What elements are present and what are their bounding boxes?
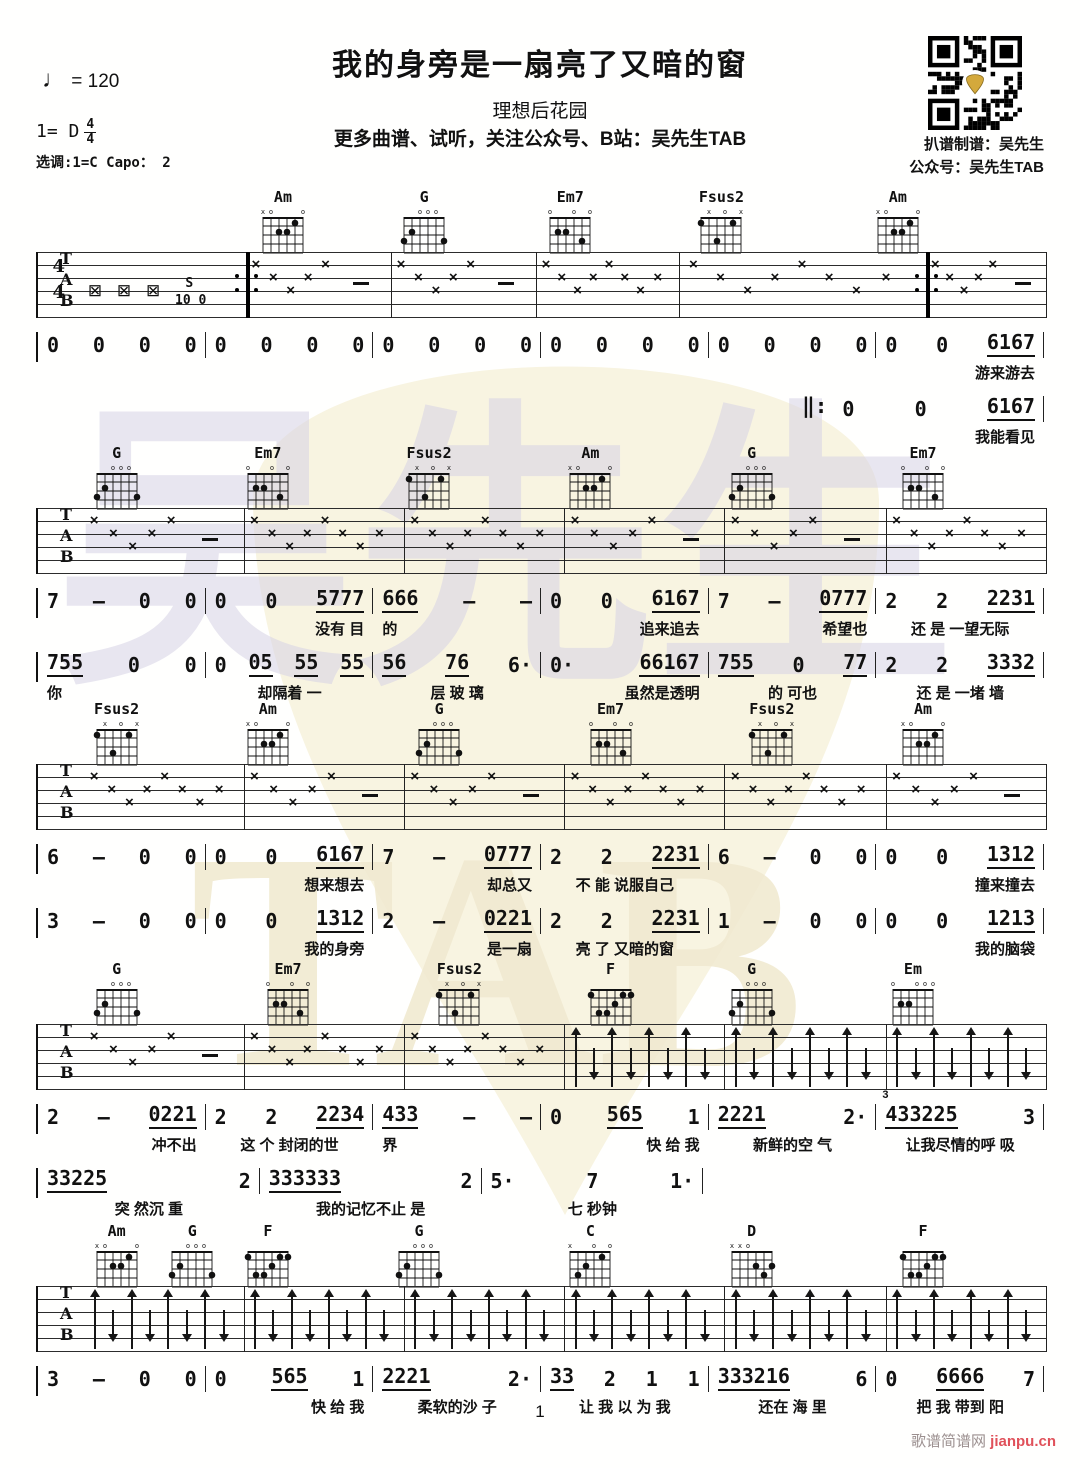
arrow-stem [1007, 1032, 1009, 1087]
arrow-stem [611, 1032, 613, 1087]
muted-box-note: ⊠ [146, 282, 160, 299]
mute-strum-x: × [428, 1042, 437, 1057]
arrow-stem [685, 1294, 687, 1349]
arrow-head [861, 1072, 871, 1080]
jianpu-token: 0 [855, 910, 867, 933]
strum-down-arrow [749, 1048, 759, 1080]
jianpu-token: 2 [382, 910, 394, 933]
promo-line: 更多曲谱、试听，关注公众号、B站：吴先生TAB [0, 124, 1080, 151]
staff-line [38, 790, 1046, 791]
jianpu-token: 0 [855, 846, 867, 869]
jianpu-token: 1312 [316, 907, 364, 933]
mute-strum-x: × [397, 257, 406, 272]
strum-up-arrow [287, 1289, 297, 1349]
strum-down-arrow [145, 1310, 155, 1342]
arrow-head [805, 1289, 815, 1297]
mute-strum-x: × [375, 526, 384, 541]
chord-row: AmxooGoooFGoooCxooDxxoF [36, 1224, 1044, 1284]
tab-letter-T: T [60, 507, 72, 523]
arrow-stem [865, 1310, 867, 1336]
jianpu-token: 0 [265, 590, 277, 613]
barline [404, 508, 405, 574]
arrow-head [929, 1027, 939, 1035]
mute-strum-x: × [969, 769, 978, 784]
svg-text:x: x [103, 720, 107, 728]
arrow-stem [951, 1048, 953, 1074]
arrow-head [200, 1289, 210, 1297]
mute-strum-x: × [998, 539, 1007, 554]
arrow-head [589, 1334, 599, 1342]
svg-text:o: o [127, 980, 131, 988]
jianpu-token: 2 [936, 654, 948, 677]
jianpu-measure: 0000 [541, 330, 709, 357]
svg-text:o: o [290, 980, 294, 988]
chord-row: GoooEm7oooFsus2xoxFGoooEmoooo [36, 962, 1044, 1022]
mute-strum-x: × [356, 539, 365, 554]
site-name: 歌谱简谱网 [911, 1433, 986, 1450]
jianpu-token: – [93, 846, 105, 869]
jianpu-measure: 006167我能看见 [833, 394, 1044, 447]
strum-down-arrow [108, 1310, 118, 1342]
site-watermark: 歌谱简谱网 jianpu.cn [911, 1430, 1056, 1451]
jianpu-token: 0 [885, 846, 897, 869]
jianpu-token: – [463, 1106, 475, 1129]
chord-grid-Em7: ooo [543, 205, 597, 257]
jianpu-token: 0 [139, 910, 151, 933]
arrow-stem [204, 1294, 206, 1349]
lyric: 虽然是透明 [550, 682, 700, 703]
arrow-head [502, 1334, 512, 1342]
svg-text:o: o [266, 980, 270, 988]
svg-text:o: o [588, 208, 592, 216]
lyric: 的 [382, 618, 532, 639]
svg-text:x: x [739, 208, 743, 216]
arrow-stem [753, 1310, 755, 1336]
arrow-head [1021, 1334, 1031, 1342]
strum-up-arrow [200, 1289, 210, 1349]
tab-letter-T: T [60, 1285, 72, 1301]
strum-down-arrow [947, 1048, 957, 1080]
mute-strum-x: × [498, 526, 507, 541]
arrow-stem [828, 1048, 830, 1074]
barline [244, 1286, 245, 1352]
mute-strum-x: × [338, 1042, 347, 1057]
arrow-stem [328, 1294, 330, 1349]
jianpu-numbers: 6–00 [47, 842, 197, 869]
svg-text:o: o [246, 464, 250, 472]
arrow-stem [753, 1048, 755, 1074]
arrow-stem [149, 1310, 151, 1336]
svg-text:o: o [413, 1242, 417, 1250]
mute-strum-x: × [808, 513, 817, 528]
jianpu-line: ‖:006167我能看见 [36, 394, 1044, 447]
arrow-head [681, 1289, 691, 1297]
time-signature: 44 [84, 118, 96, 146]
arrow-stem [223, 1310, 225, 1336]
chord-name: G [397, 190, 451, 205]
mute-strum-x: × [498, 1042, 507, 1057]
svg-text:o: o [941, 464, 945, 472]
arrow-stem [470, 1310, 472, 1336]
tempo-value: = 120 [71, 71, 119, 92]
strum-up-arrow [731, 1289, 741, 1349]
strum-up-arrow [324, 1289, 334, 1349]
jianpu-measure: 22212·新鲜的空 气 [709, 1102, 877, 1155]
arrow-head [731, 1289, 741, 1297]
strum-up-arrow [966, 1027, 976, 1087]
arrow-head [892, 1289, 902, 1297]
chord-name: Am [563, 446, 617, 461]
mute-strum-x: × [749, 782, 758, 797]
barline [244, 764, 245, 830]
svg-text:o: o [119, 464, 123, 472]
svg-text:x: x [135, 720, 139, 728]
slide-mark: S [185, 276, 193, 291]
mute-strum-x: × [167, 1029, 176, 1044]
mute-strum-x: × [648, 513, 657, 528]
jianpu-token: 2 [550, 910, 562, 933]
arrow-head [219, 1334, 229, 1342]
staff-line [38, 1089, 1046, 1090]
chord-name: F [241, 1224, 295, 1239]
jianpu-token: – [520, 590, 532, 613]
arrow-head [984, 1334, 994, 1342]
jianpu-token: 0 [809, 846, 821, 869]
half-rest-dash [202, 538, 218, 541]
jianpu-token: 2231 [987, 587, 1035, 613]
mute-strum-x: × [428, 526, 437, 541]
jianpu-token: 433 [382, 1103, 418, 1129]
lyric: 这 个 封闭的世 [215, 1134, 365, 1155]
mute-strum-x: × [463, 526, 472, 541]
mute-strum-x: × [770, 539, 779, 554]
arrow-head [447, 1289, 457, 1297]
svg-text:x: x [445, 980, 449, 988]
strum-up-arrow [90, 1289, 100, 1349]
arrow-head [892, 1027, 902, 1035]
svg-text:o: o [754, 980, 758, 988]
mute-strum-x: × [676, 795, 685, 810]
svg-text:o: o [127, 464, 131, 472]
jianpu-numbers: 05651 [215, 1364, 365, 1391]
mute-strum-x: × [689, 257, 698, 272]
arrow-head [787, 1334, 797, 1342]
jianpu-line: 6–00006167想来想去7–0777却总又222231不 能 说服自己6–0… [36, 842, 1044, 895]
strum-down-arrow [911, 1310, 921, 1342]
jianpu-measure: 2–0221是一扇 [373, 906, 541, 959]
arrow-head [127, 1289, 137, 1297]
jianpu-token: 3 [47, 910, 59, 933]
chord-name: Fsus2 [402, 446, 456, 461]
mute-strum-x: × [653, 270, 662, 285]
jianpu-line: 75500你0055555却隔着 一56766·层 玻 璃0·66167虽然是透… [36, 650, 1044, 703]
mute-strum-x: × [147, 526, 156, 541]
jianpu-numbers: 001312 [885, 842, 1035, 869]
svg-text:x: x [707, 208, 711, 216]
svg-text:o: o [901, 464, 905, 472]
arrow-head [571, 1289, 581, 1297]
arrow-stem [846, 1294, 848, 1349]
jianpu-measure: 7–00 [38, 586, 206, 613]
jianpu-measure: 433––界 [373, 1102, 541, 1155]
mute-strum-x: × [90, 769, 99, 784]
strum-up-arrow [681, 1289, 691, 1349]
arrow-stem [575, 1294, 577, 1349]
arrow-head [268, 1334, 278, 1342]
svg-text:o: o [431, 464, 435, 472]
jianpu-measure: 006167游来游去 [876, 330, 1044, 383]
jianpu-token: 0 [215, 910, 227, 933]
mute-strum-x: × [636, 283, 645, 298]
chord-name: G [392, 1224, 446, 1239]
mute-strum-x: × [215, 782, 224, 797]
arrow-head [626, 1334, 636, 1342]
jianpu-numbers: 0000 [718, 330, 868, 357]
lyric: 我的脑袋 [885, 938, 1035, 959]
strum-down-arrow [911, 1048, 921, 1080]
svg-text:o: o [301, 208, 305, 216]
staff-line [38, 803, 1046, 804]
arrow-head [607, 1027, 617, 1035]
barline [886, 508, 887, 574]
mute-strum-x: × [911, 782, 920, 797]
arrow-stem [933, 1294, 935, 1349]
arrow-head [626, 1072, 636, 1080]
svg-text:o: o [628, 720, 632, 728]
jianpu-numbers: 5·71· [491, 1166, 695, 1193]
arrow-head [644, 1027, 654, 1035]
arrow-head [749, 1072, 759, 1080]
jianpu-token: 1213 [987, 907, 1035, 933]
staff-line [38, 547, 1046, 548]
mute-strum-x: × [125, 795, 134, 810]
jianpu-token: 3 [47, 1368, 59, 1391]
jianpu-measure: 6–00 [38, 842, 206, 869]
tab-staff: TAB [36, 1286, 1046, 1352]
tab-letter-B: B [60, 549, 74, 565]
strum-down-arrow [861, 1310, 871, 1342]
jianpu-token: 0 [306, 334, 318, 357]
arrow-head [145, 1334, 155, 1342]
strum-down-arrow [626, 1048, 636, 1080]
repeat-start-sign: ‖: [802, 394, 833, 418]
barline [244, 1024, 245, 1090]
svg-text:x: x [901, 720, 905, 728]
strum-up-arrow [644, 1289, 654, 1349]
mute-strum-x: × [628, 526, 637, 541]
strum-up-arrow [1003, 1027, 1013, 1087]
jianpu-token: – [93, 1368, 105, 1391]
staff-line [38, 829, 1046, 830]
jianpu-numbers: 75500 [47, 650, 197, 677]
jianpu-token: 2221 [382, 1365, 430, 1391]
repeat-dot [235, 274, 239, 278]
chord-grid-Am: xoo [563, 461, 617, 513]
system-3: Fsus2xoxAmxooGoooEm7oooFsus2xoxAmxooTAB×… [36, 708, 1044, 964]
strum-up-arrow [521, 1289, 531, 1349]
muted-box-note: ⊠ [88, 282, 102, 299]
artist-name: 理想后花园 [0, 96, 1080, 123]
arrow-stem [772, 1294, 774, 1349]
lyric: 我能看见 [842, 426, 1035, 447]
arrow-head [410, 1289, 420, 1297]
chord-name: F [896, 1224, 950, 1239]
svg-text:o: o [576, 464, 580, 472]
jianpu-line: 332252突 然沉 重3333332我的记忆不止 是5·71·七 秒钟 [36, 1166, 1044, 1219]
lyric: 是一扇 [382, 938, 532, 959]
jianpu-token: 6· [508, 654, 532, 677]
transpose-capo-line: 选调:1=C Capo： 2 [36, 152, 171, 172]
arrow-stem [1025, 1048, 1027, 1074]
lyric: 冲不出 [47, 1134, 197, 1155]
strum-up-arrow [966, 1289, 976, 1349]
mute-strum-x: × [321, 1029, 330, 1044]
jianpu-numbers: 433–– [382, 1102, 532, 1129]
chord-name: Em [886, 962, 940, 977]
jianpu-token: 3 [1023, 1106, 1035, 1129]
strum-up-arrow [805, 1289, 815, 1349]
arrow-head [731, 1027, 741, 1035]
chord-grid-G: ooo [90, 977, 144, 1029]
half-rest-dash [523, 794, 539, 797]
jianpu-token: 2 [460, 1170, 472, 1193]
svg-text:o: o [421, 1242, 425, 1250]
jianpu-numbers: 001213 [885, 906, 1035, 933]
jianpu-token: 1 [688, 1368, 700, 1391]
system-1: AmxooGoooEm7oooFsus2xoxAmxooTAB44⊠⊠⊠S10 … [36, 196, 1044, 452]
jianpu-token: 0 [936, 910, 948, 933]
jianpu-measure: 332252突 然沉 重 [38, 1166, 260, 1219]
staff-line [38, 508, 1046, 509]
arrow-head [700, 1072, 710, 1080]
chord-grid-F [584, 977, 638, 1029]
jianpu-token: 565 [607, 1103, 643, 1129]
chord-name: Am [256, 190, 310, 205]
jianpu-token: 0 [352, 334, 364, 357]
slide-frets: 10 0 [175, 293, 206, 308]
strum-up-arrow [805, 1027, 815, 1087]
strum-up-arrow [447, 1289, 457, 1349]
arrow-head [539, 1334, 549, 1342]
mute-strum-x: × [285, 539, 294, 554]
svg-text:x: x [95, 1242, 99, 1250]
lyric: 撞来撞去 [885, 874, 1035, 895]
jianpu-token: 565 [271, 1365, 307, 1391]
chord-name: D [725, 1224, 779, 1239]
mute-strum-x: × [268, 526, 277, 541]
arrow-stem [865, 1048, 867, 1074]
chord-row: Fsus2xoxAmxooGoooEm7oooFsus2xoxAmxoo [36, 702, 1044, 762]
half-rest-dash [683, 538, 699, 541]
strum-down-arrow [984, 1048, 994, 1080]
jianpu-measure: 666––的 [373, 586, 541, 639]
chord-name: Em7 [241, 446, 295, 461]
jianpu-token: 55 [340, 651, 364, 677]
mute-strum-x: × [304, 270, 313, 285]
strum-up-arrow [484, 1289, 494, 1349]
mute-strum-x: × [1017, 526, 1026, 541]
arrow-stem [309, 1310, 311, 1336]
barline [1046, 252, 1047, 318]
svg-text:o: o [588, 720, 592, 728]
lyric: 没有 目 [215, 618, 365, 639]
system-4: GoooEm7oooFsus2xoxFGoooEmooooTAB××××××××… [36, 968, 1044, 1224]
jianpu-numbers: 1–00 [718, 906, 868, 933]
mute-strum-x: × [766, 795, 775, 810]
lyric: 层 玻 璃 [382, 682, 532, 703]
mute-strum-x: × [931, 257, 940, 272]
jianpu-measure: 05651快 给 我 [541, 1102, 709, 1155]
jianpu-token: 0· [550, 654, 574, 677]
svg-text:x: x [415, 464, 419, 472]
strum-up-arrow [361, 1289, 371, 1349]
jianpu-token: 2221 [718, 1103, 766, 1129]
jianpu-token: – [764, 910, 776, 933]
jianpu-token: 0 [215, 846, 227, 869]
chord-grid-G: ooo [165, 1239, 219, 1291]
arrow-stem [896, 1294, 898, 1349]
jianpu-token: 2· [843, 1106, 867, 1129]
jianpu-token: 0 [185, 910, 197, 933]
jianpu-numbers: 001312 [215, 906, 365, 933]
chord-name: Am [90, 1224, 144, 1239]
mute-strum-x: × [659, 782, 668, 797]
mute-strum-x: × [327, 769, 336, 784]
arrow-stem [593, 1048, 595, 1074]
strum-down-arrow [219, 1310, 229, 1342]
jianpu-token: 0 [550, 590, 562, 613]
mute-strum-x: × [430, 782, 439, 797]
chord-grid-C: xoo [563, 1239, 617, 1291]
arrow-stem [346, 1310, 348, 1336]
jianpu-measure: 6–00 [709, 842, 877, 869]
barline [886, 1024, 887, 1090]
jianpu-token: – [93, 590, 105, 613]
mute-strum-x: × [147, 1042, 156, 1057]
arrow-head [842, 1027, 852, 1035]
mute-strum-x: × [974, 270, 983, 285]
repeat-dot [235, 288, 239, 292]
mute-strum-x: × [606, 795, 615, 810]
arrow-head [429, 1334, 439, 1342]
lyric: 突 然沉 重 [47, 1198, 251, 1219]
jianpu-token: 0 [915, 398, 927, 421]
arrow-stem [630, 1310, 632, 1336]
staff-line [38, 1286, 1046, 1287]
mute-strum-x: × [571, 769, 580, 784]
system-2: GoooEm7oooFsus2xoxAmxooGoooEm7oooTAB××××… [36, 452, 1044, 708]
arrow-stem [685, 1032, 687, 1087]
chord-grid-Em: oooo [886, 977, 940, 1029]
chord-grid-Am: xoo [871, 205, 925, 257]
jianpu-token: 1 [646, 1368, 658, 1391]
wechat-credit: 公众号：吴先生TAB [909, 156, 1044, 177]
mute-strum-x: × [641, 769, 650, 784]
jianpu-token: 0 [93, 334, 105, 357]
arrow-stem [988, 1048, 990, 1074]
chord-grid-G: ooo [90, 461, 144, 513]
jianpu-measure: 0000 [206, 330, 374, 357]
jianpu-token: 0 [428, 334, 440, 357]
jianpu-token: 6 [855, 1368, 867, 1391]
repeat-barline [926, 252, 930, 318]
arrow-stem [915, 1310, 917, 1336]
jianpu-token: 6167 [652, 587, 700, 613]
mute-strum-x: × [410, 513, 419, 528]
mute-strum-x: × [931, 795, 940, 810]
half-rest-dash [202, 1054, 218, 1057]
svg-text:o: o [135, 1242, 139, 1250]
